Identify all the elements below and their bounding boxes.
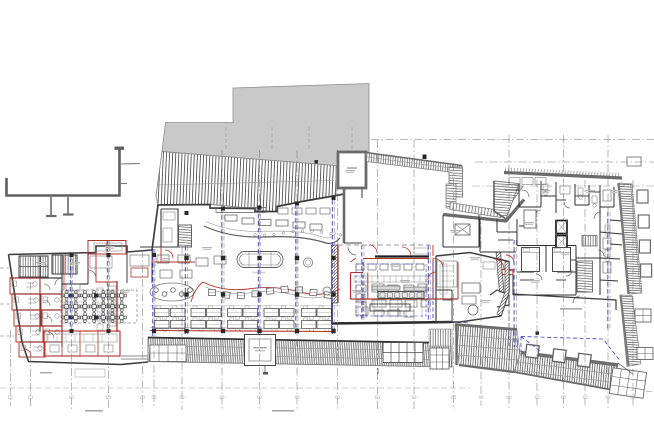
svg-text:Pizza Pass: Pizza Pass [252, 271, 266, 275]
